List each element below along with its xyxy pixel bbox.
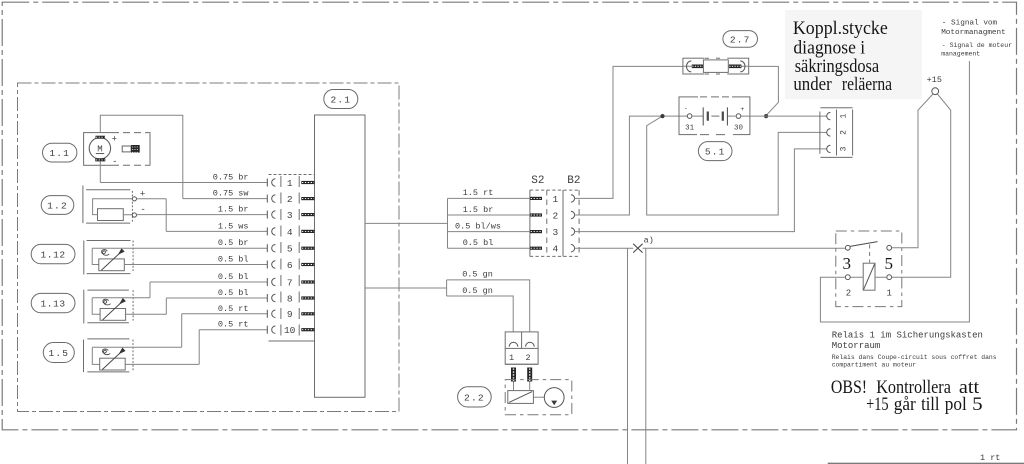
svg-text:0.5 rt: 0.5 rt xyxy=(218,320,249,330)
svg-text:0.5 bl: 0.5 bl xyxy=(463,238,494,248)
svg-text:1.12: 1.12 xyxy=(40,250,65,261)
svg-text:a): a) xyxy=(644,236,654,246)
svg-text:1.5 rt: 1.5 rt xyxy=(463,188,494,198)
svg-text:- Signal vom: - Signal vom xyxy=(942,20,998,28)
svg-text:1: 1 xyxy=(552,194,558,205)
svg-text:går: går xyxy=(894,394,917,415)
svg-text:8: 8 xyxy=(287,293,293,304)
svg-text:+: + xyxy=(112,134,117,144)
svg-text:1 rt: 1 rt xyxy=(980,453,1000,463)
svg-text:-: - xyxy=(684,106,688,113)
svg-text:under: under xyxy=(793,75,831,95)
svg-text:0.5 rt: 0.5 rt xyxy=(218,304,249,314)
svg-text:1: 1 xyxy=(886,289,891,299)
svg-text:+: + xyxy=(740,106,744,113)
svg-text:OBS!: OBS! xyxy=(831,377,867,398)
svg-text:0.5 bl/ws: 0.5 bl/ws xyxy=(455,221,501,231)
svg-text:Koppl.stycke: Koppl.stycke xyxy=(793,19,888,39)
svg-text:-: - xyxy=(112,157,117,167)
svg-text:1.5 ws: 1.5 ws xyxy=(218,221,249,231)
svg-text:management: management xyxy=(941,51,980,58)
svg-text:1.2: 1.2 xyxy=(47,200,68,211)
svg-text:-: - xyxy=(140,205,145,215)
svg-text:+15: +15 xyxy=(866,394,889,415)
svg-text:3: 3 xyxy=(843,254,852,273)
svg-text:Motormanagment: Motormanagment xyxy=(941,29,1006,37)
svg-text:4: 4 xyxy=(552,244,558,255)
svg-text:Relais 1 im Sicherungskasten: Relais 1 im Sicherungskasten xyxy=(832,330,983,340)
svg-text:2: 2 xyxy=(526,353,531,363)
svg-text:2: 2 xyxy=(552,210,558,221)
svg-text:10: 10 xyxy=(284,325,296,336)
svg-text:2.7: 2.7 xyxy=(730,34,751,45)
svg-text:pol: pol xyxy=(945,394,967,415)
svg-text:5: 5 xyxy=(287,244,293,255)
svg-text:9: 9 xyxy=(287,309,293,320)
svg-text:reläerna: reläerna xyxy=(842,75,892,95)
svg-text:- Signal de moteur: - Signal de moteur xyxy=(942,42,1012,49)
svg-text:2: 2 xyxy=(846,289,851,299)
svg-text:M: M xyxy=(97,145,102,155)
svg-text:diagnose i: diagnose i xyxy=(793,39,865,59)
svg-text:1.5: 1.5 xyxy=(48,348,69,359)
svg-text:0.5 br: 0.5 br xyxy=(218,238,249,248)
svg-text:5: 5 xyxy=(972,394,983,415)
svg-text:+: + xyxy=(140,189,145,199)
svg-text:0.75 br: 0.75 br xyxy=(213,173,249,183)
svg-text:2.1: 2.1 xyxy=(330,94,351,105)
svg-text:+15: +15 xyxy=(927,75,942,85)
svg-text:0.5 gn: 0.5 gn xyxy=(462,270,493,280)
svg-text:0.5 bl: 0.5 bl xyxy=(218,255,249,265)
svg-text:1.1: 1.1 xyxy=(49,148,70,159)
svg-text:3: 3 xyxy=(287,210,293,221)
svg-text:7: 7 xyxy=(287,277,293,288)
svg-text:0.5 bl: 0.5 bl xyxy=(218,288,249,298)
svg-text:5.1: 5.1 xyxy=(705,147,726,158)
svg-text:1.5 br: 1.5 br xyxy=(218,205,249,215)
svg-text:6: 6 xyxy=(287,260,293,271)
svg-text:compartiment au moteur: compartiment au moteur xyxy=(832,361,917,368)
svg-text:1: 1 xyxy=(287,178,293,189)
svg-text:1: 1 xyxy=(509,353,514,363)
svg-text:4: 4 xyxy=(287,227,293,238)
svg-text:1: 1 xyxy=(840,114,849,119)
svg-text:S2: S2 xyxy=(531,175,544,187)
svg-text:30: 30 xyxy=(734,125,744,133)
svg-text:3: 3 xyxy=(552,227,558,238)
svg-text:1.13: 1.13 xyxy=(40,299,65,310)
svg-text:31: 31 xyxy=(685,125,695,133)
svg-text:2: 2 xyxy=(287,194,293,205)
svg-text:Relais dans Coupe-circuit sous: Relais dans Coupe-circuit sous coffret d… xyxy=(832,354,997,361)
svg-text:0.5 bl: 0.5 bl xyxy=(218,272,249,282)
svg-text:säkringsdosa: säkringsdosa xyxy=(795,57,880,77)
svg-text:B2: B2 xyxy=(567,175,580,187)
svg-text:2.2: 2.2 xyxy=(464,392,485,403)
svg-text:0.5 gn: 0.5 gn xyxy=(462,286,493,296)
svg-text:2: 2 xyxy=(840,130,849,135)
svg-text:1.5 br: 1.5 br xyxy=(463,205,494,215)
svg-text:3: 3 xyxy=(840,146,849,151)
svg-text:5: 5 xyxy=(885,254,894,273)
svg-text:Motorraum: Motorraum xyxy=(832,341,881,351)
svg-text:0.75 sw: 0.75 sw xyxy=(213,189,250,199)
svg-text:till: till xyxy=(921,394,939,415)
